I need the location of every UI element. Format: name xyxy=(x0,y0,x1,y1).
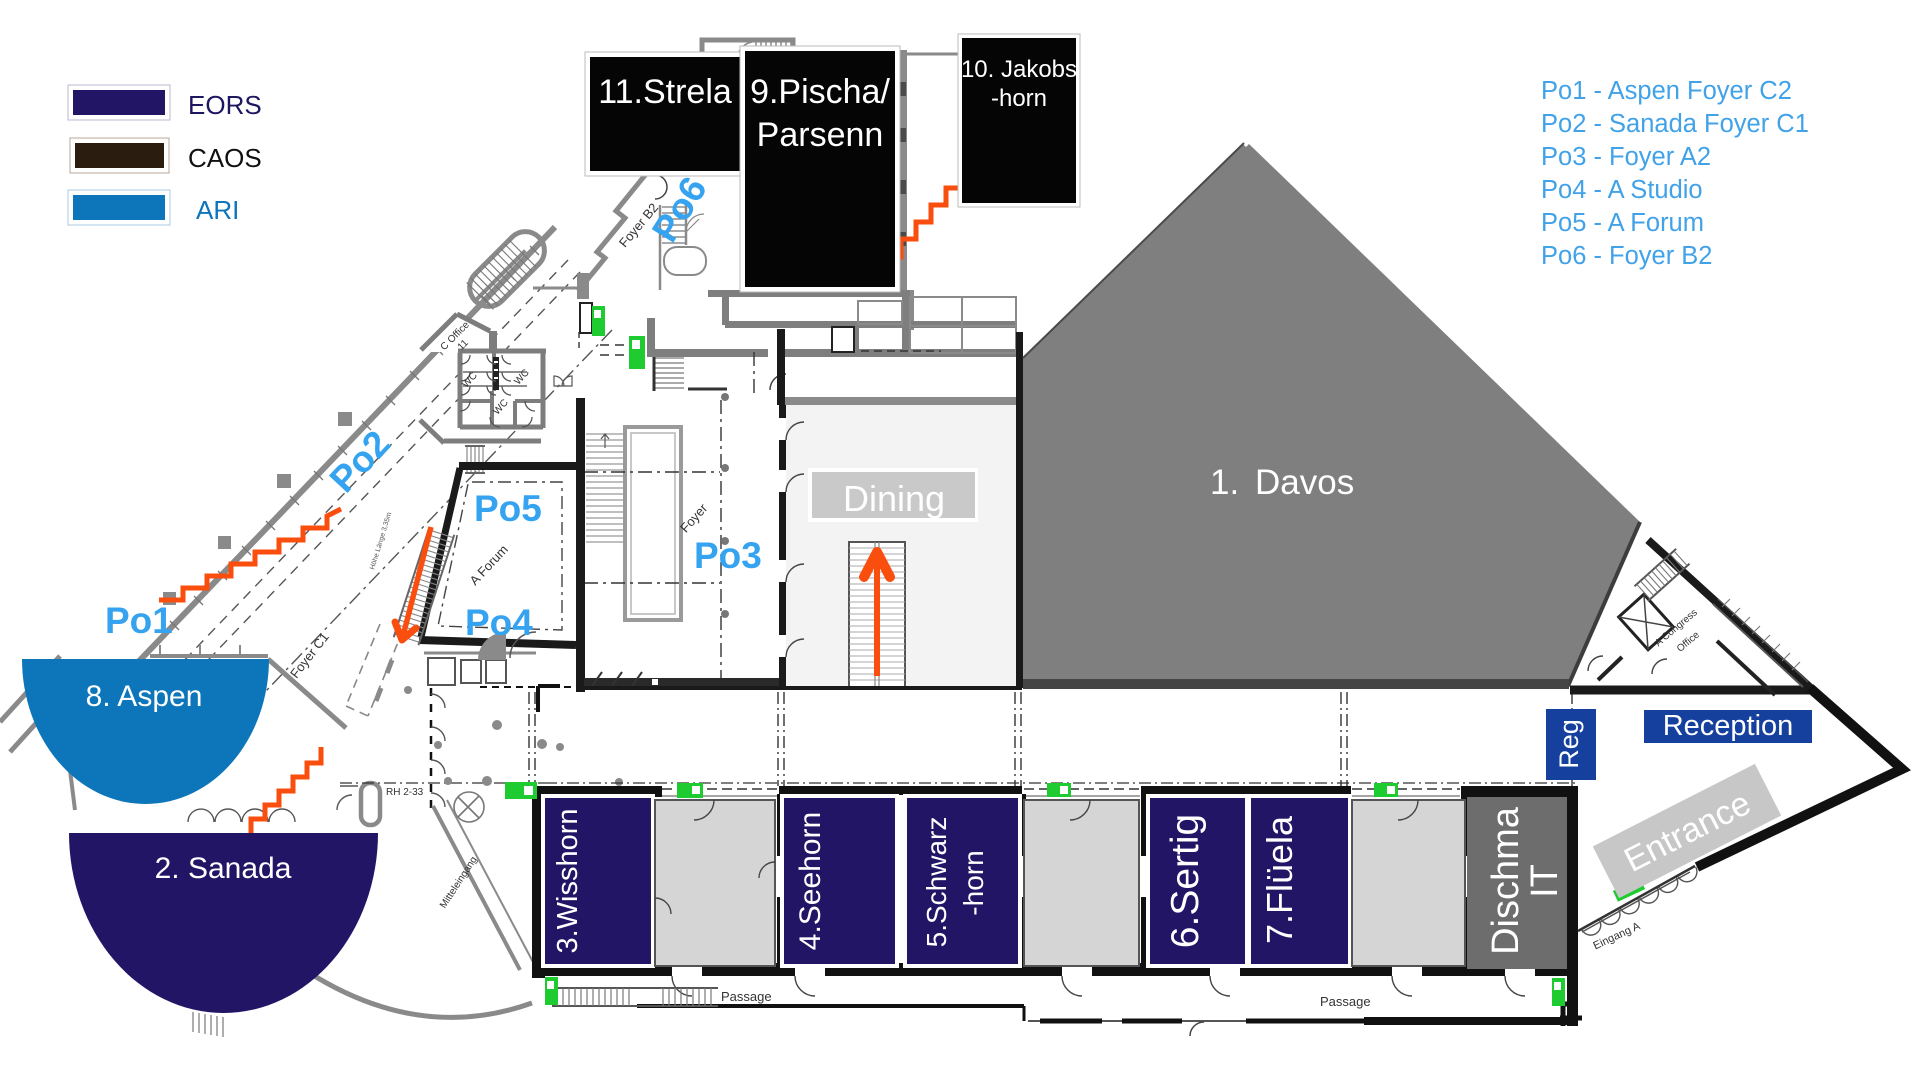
svg-text:Po2 - Sanada Foyer C1: Po2 - Sanada Foyer C1 xyxy=(1541,110,1809,138)
svg-text:ARI: ARI xyxy=(196,195,239,225)
svg-text:Davos: Davos xyxy=(1255,463,1354,502)
svg-text:IT: IT xyxy=(1524,864,1566,898)
svg-text:CAOS: CAOS xyxy=(188,143,262,173)
svg-text:6.Sertig: 6.Sertig xyxy=(1164,814,1207,948)
svg-text:-horn: -horn xyxy=(958,850,989,915)
svg-text:RH 2-33: RH 2-33 xyxy=(386,787,424,798)
svg-text:-horn: -horn xyxy=(991,85,1047,112)
svg-text:Passage: Passage xyxy=(1320,994,1371,1009)
svg-text:Parsenn: Parsenn xyxy=(757,116,884,154)
svg-text:Po3: Po3 xyxy=(694,535,762,576)
svg-text:10. Jakobs: 10. Jakobs xyxy=(961,56,1077,83)
svg-text:EORS: EORS xyxy=(188,90,262,120)
svg-text:8. Aspen: 8. Aspen xyxy=(86,680,203,713)
svg-text:2. Sanada: 2. Sanada xyxy=(155,852,292,885)
svg-text:1.: 1. xyxy=(1210,463,1239,502)
svg-text:Dining: Dining xyxy=(843,478,945,519)
svg-text:Po3 - Foyer A2: Po3 - Foyer A2 xyxy=(1541,143,1711,171)
svg-text:Dischma: Dischma xyxy=(1485,806,1527,955)
svg-text:5.Schwarz: 5.Schwarz xyxy=(921,817,952,948)
svg-text:Reg: Reg xyxy=(1554,719,1584,769)
svg-text:11.Strela: 11.Strela xyxy=(598,73,732,111)
svg-text:Po1: Po1 xyxy=(105,600,173,641)
svg-text:Passage: Passage xyxy=(721,989,772,1004)
svg-text:Po6 - Foyer B2: Po6 - Foyer B2 xyxy=(1541,242,1713,270)
svg-text:Po5 - A Forum: Po5 - A Forum xyxy=(1541,209,1704,237)
svg-text:Po1 - Aspen Foyer C2: Po1 - Aspen Foyer C2 xyxy=(1541,77,1792,105)
svg-text:3.Wisshorn: 3.Wisshorn xyxy=(552,808,584,953)
svg-text:Po4 - A Studio: Po4 - A Studio xyxy=(1541,176,1703,204)
svg-text:4.Seehorn: 4.Seehorn xyxy=(794,812,827,950)
svg-text:9.Pischa/: 9.Pischa/ xyxy=(750,73,890,111)
svg-text:Po5: Po5 xyxy=(474,488,542,529)
svg-text:7.Flüela: 7.Flüela xyxy=(1259,815,1300,944)
svg-text:Po4: Po4 xyxy=(465,602,533,643)
svg-text:Reception: Reception xyxy=(1663,710,1794,742)
